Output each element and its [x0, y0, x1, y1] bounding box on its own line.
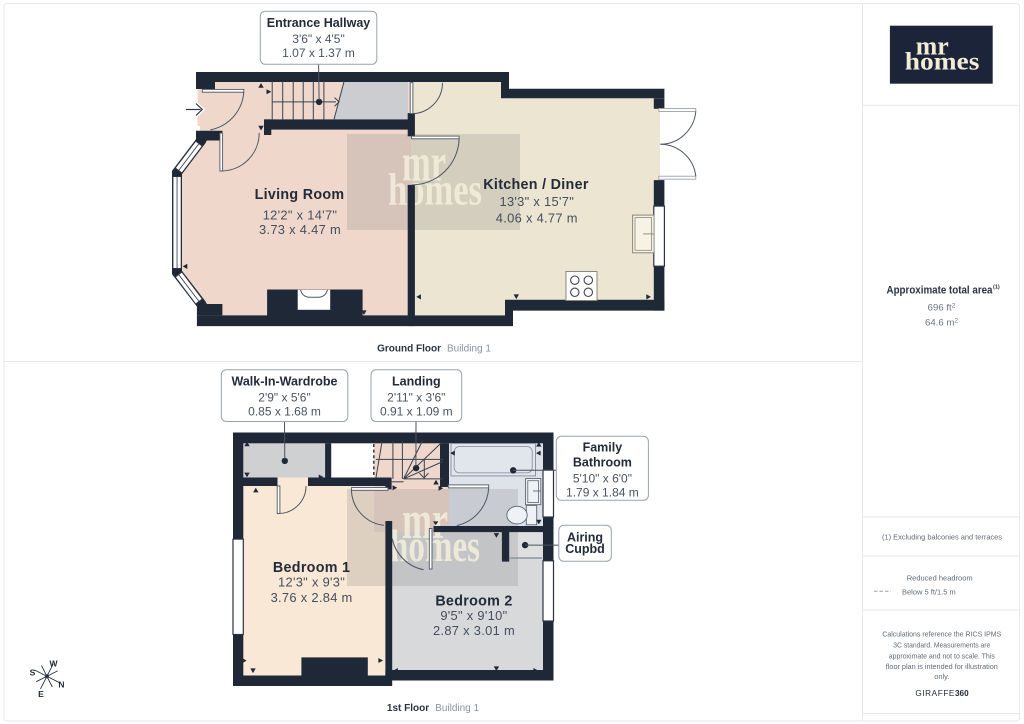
svg-text:Cupbd: Cupbd	[565, 542, 605, 556]
svg-text:approximate and not to scale.: approximate and not to scale. This	[889, 651, 995, 660]
svg-text:Below 5 ft/1.5 m: Below 5 ft/1.5 m	[902, 587, 956, 596]
svg-text:homes: homes	[388, 164, 482, 215]
svg-text:2'11" x 3'6": 2'11" x 3'6"	[387, 390, 445, 404]
svg-text:Bedroom 1: Bedroom 1	[273, 560, 350, 576]
svg-text:0.91 x 1.09 m: 0.91 x 1.09 m	[380, 404, 453, 418]
svg-text:Ground FloorBuilding 1: Ground FloorBuilding 1	[377, 344, 491, 355]
svg-text:0.85 x 1.68 m: 0.85 x 1.68 m	[248, 404, 321, 418]
svg-text:9'5" x 9'10": 9'5" x 9'10"	[440, 608, 507, 623]
svg-text:Approximate total area: Approximate total area	[887, 285, 994, 297]
svg-text:Living Room: Living Room	[255, 187, 345, 203]
svg-text:(1) Excluding balconies and te: (1) Excluding balconies and terraces	[882, 533, 1002, 542]
svg-text:Bedroom 2: Bedroom 2	[435, 593, 512, 609]
svg-text:floor plan is intended for ill: floor plan is intended for illustration	[886, 662, 998, 671]
svg-text:4.06 x 4.77 m: 4.06 x 4.77 m	[496, 210, 578, 225]
svg-text:5'10" x 6'0": 5'10" x 6'0"	[573, 472, 632, 486]
svg-text:GIRAFFE360: GIRAFFE360	[915, 689, 969, 698]
svg-text:Family: Family	[583, 441, 623, 455]
svg-text:1.79 x 1.84 m: 1.79 x 1.84 m	[566, 486, 639, 500]
svg-text:3'6" x 4'5": 3'6" x 4'5"	[292, 32, 344, 46]
svg-text:Kitchen / Diner: Kitchen / Diner	[483, 177, 589, 193]
svg-text:homes: homes	[905, 49, 980, 76]
svg-text:Walk-In-Wardrobe: Walk-In-Wardrobe	[231, 375, 337, 389]
svg-text:696 ft2: 696 ft2	[928, 303, 956, 314]
svg-text:Calculations reference the RIC: Calculations reference the RICS IPMS	[882, 630, 1001, 639]
svg-text:N: N	[58, 680, 64, 690]
svg-text:E: E	[38, 689, 44, 699]
svg-text:12'3" x 9'3": 12'3" x 9'3"	[278, 575, 345, 590]
svg-text:3C standard. Measurements are: 3C standard. Measurements are	[893, 641, 990, 650]
svg-text:Entrance Hallway: Entrance Hallway	[267, 16, 371, 30]
svg-text:Landing: Landing	[392, 375, 441, 389]
svg-text:64.6 m2: 64.6 m2	[925, 317, 958, 328]
svg-text:12'2" x 14'7": 12'2" x 14'7"	[263, 208, 338, 223]
svg-text:Reduced headroom: Reduced headroom	[907, 574, 973, 583]
svg-text:13'3" x 15'7": 13'3" x 15'7"	[499, 194, 574, 209]
svg-text:3.76 x 2.84 m: 3.76 x 2.84 m	[271, 590, 353, 605]
svg-text:(1): (1)	[993, 285, 1000, 291]
svg-text:1.07 x 1.37 m: 1.07 x 1.37 m	[282, 46, 355, 60]
svg-text:W: W	[49, 659, 58, 669]
svg-text:S: S	[30, 668, 36, 678]
svg-text:2'9" x 5'6": 2'9" x 5'6"	[258, 390, 310, 404]
svg-text:only.: only.	[934, 672, 949, 681]
svg-text:3.73 x 4.47 m: 3.73 x 4.47 m	[259, 222, 341, 237]
svg-text:2.87 x 3.01 m: 2.87 x 3.01 m	[433, 623, 515, 638]
svg-text:Bathroom: Bathroom	[573, 456, 632, 470]
